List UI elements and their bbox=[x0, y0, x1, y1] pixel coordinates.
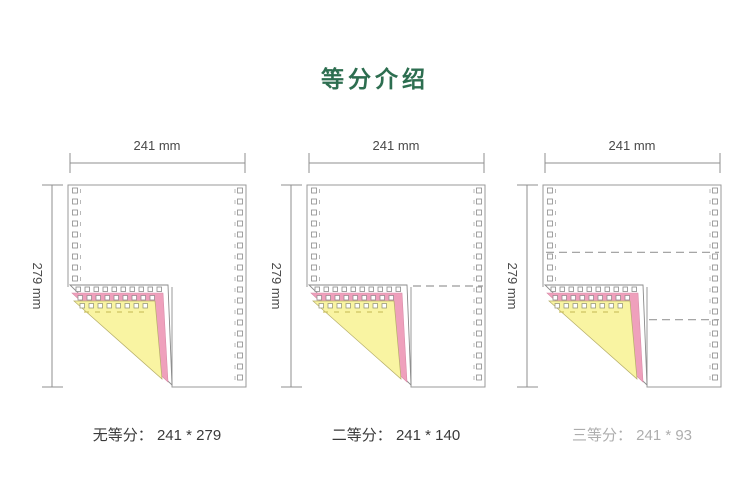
diagram-two-equal-parts: 241 mm 279 mm 二等分： 241 * 140 bbox=[247, 130, 497, 460]
paper-illustration bbox=[483, 130, 733, 420]
paper-illustration bbox=[8, 130, 258, 420]
diagram-caption: 三等分： 241 * 93 bbox=[483, 424, 750, 445]
diagram-no-division: 241 mm 279 mm 无等分： 241 * 279 bbox=[8, 130, 258, 460]
paper-illustration bbox=[247, 130, 497, 420]
diagram-three-equal-parts: 241 mm 279 mm 三等分： 241 * 93 bbox=[483, 130, 733, 460]
page-title: 等分介绍 bbox=[0, 60, 750, 94]
